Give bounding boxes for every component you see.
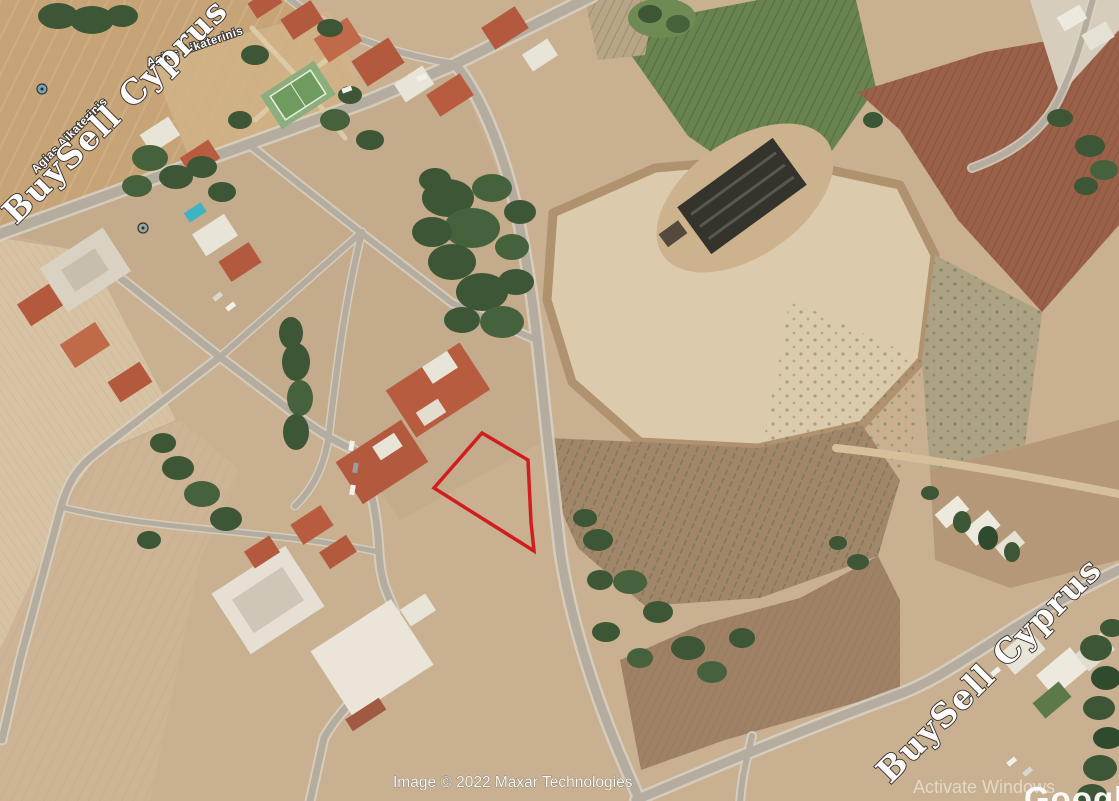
imagery-attribution: Image © 2022 Maxar Technologies (393, 774, 633, 791)
google-logo-partial: Google (1024, 780, 1119, 801)
satellite-scene: Agias Aikaterinis Agias Aikaterinis BuyS… (0, 0, 1119, 801)
listing-map-image: Agias Aikaterinis Agias Aikaterinis BuyS… (0, 0, 1119, 801)
